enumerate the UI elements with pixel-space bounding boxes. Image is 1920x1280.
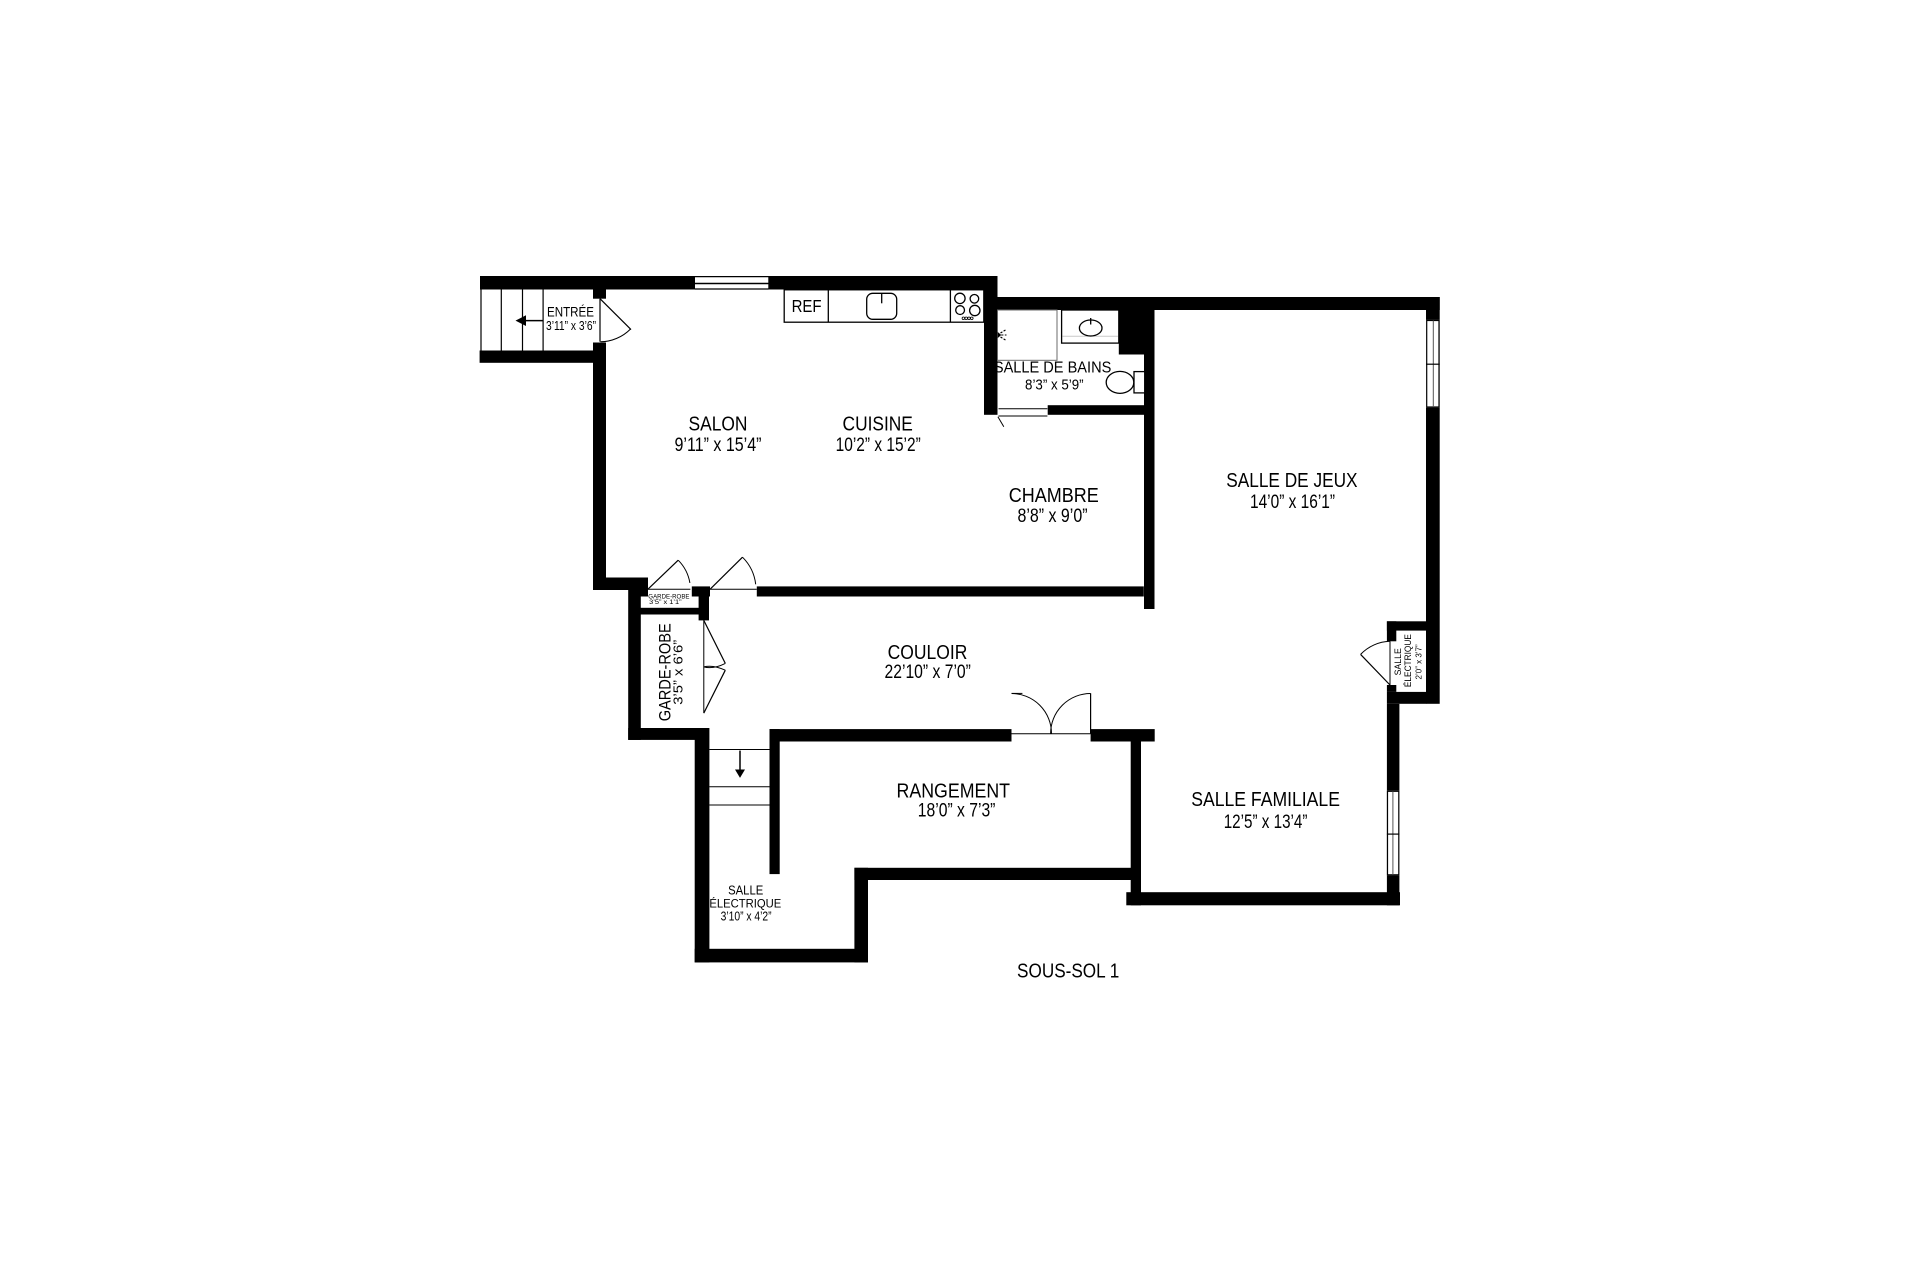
svg-text:12’5” x 13’4”: 12’5” x 13’4”	[1224, 812, 1308, 833]
svg-text:CUISINE: CUISINE	[843, 414, 913, 436]
svg-text:RANGEMENT: RANGEMENT	[897, 781, 1011, 803]
svg-text:9’11” x 15’4”: 9’11” x 15’4”	[675, 435, 762, 456]
svg-text:SALLE DE JEUX: SALLE DE JEUX	[1226, 470, 1357, 492]
svg-text:3’10” x 4’2”: 3’10” x 4’2”	[721, 910, 772, 924]
svg-text:8’8” x 9’0”: 8’8” x 9’0”	[1018, 506, 1088, 527]
svg-text:CHAMBRE: CHAMBRE	[1009, 485, 1099, 507]
svg-text:8’3” x 5’9”: 8’3” x 5’9”	[1025, 376, 1084, 393]
svg-text:SALLE DE BAINS: SALLE DE BAINS	[994, 360, 1112, 377]
svg-text:18’0” x 7’3”: 18’0” x 7’3”	[918, 800, 996, 821]
svg-text:SALLE: SALLE	[728, 883, 763, 897]
svg-text:22’10” x 7’0”: 22’10” x 7’0”	[885, 662, 971, 683]
svg-text:2’0” x 3’7”: 2’0” x 3’7”	[1413, 644, 1423, 679]
svg-text:ENTRÉE: ENTRÉE	[547, 305, 594, 320]
svg-text:REF: REF	[792, 296, 822, 316]
svg-text:3’11” x 3’6”: 3’11” x 3’6”	[546, 319, 596, 333]
svg-text:ÉLECTRIQUE: ÉLECTRIQUE	[709, 896, 781, 911]
svg-text:14’0” x 16’1”: 14’0” x 16’1”	[1250, 492, 1335, 513]
svg-text:COULOIR: COULOIR	[888, 642, 968, 664]
svg-text:SALON: SALON	[689, 414, 748, 436]
svg-text:3’5” x 6’6”: 3’5” x 6’6”	[671, 640, 686, 705]
svg-text:3’5” x 1’1”: 3’5” x 1’1”	[649, 599, 682, 606]
svg-text:SALLE FAMILIALE: SALLE FAMILIALE	[1191, 789, 1340, 811]
svg-text:SOUS-SOL 1: SOUS-SOL 1	[1017, 960, 1119, 982]
svg-text:10’2” x 15’2”: 10’2” x 15’2”	[836, 435, 921, 456]
